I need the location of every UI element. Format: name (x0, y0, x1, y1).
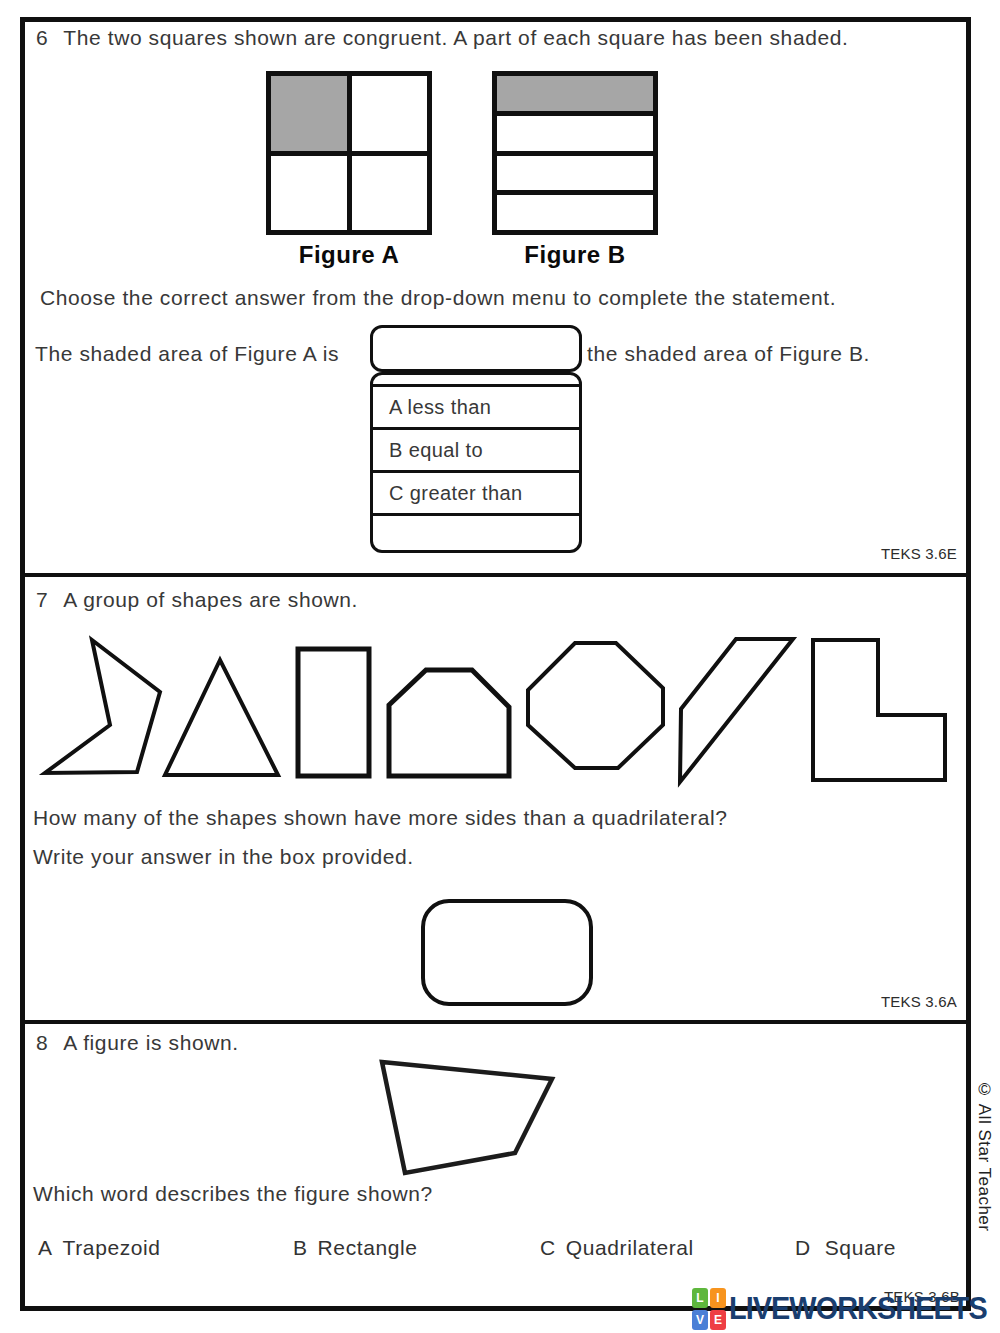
figure-comparison-dropdown[interactable] (370, 325, 582, 372)
shape-quadrilateral (382, 1062, 552, 1173)
liveworksheets-logo-blocks-icon: L I V E (692, 1288, 726, 1330)
choice-letter: D (795, 1236, 811, 1260)
figure-b-row (497, 116, 653, 151)
q6-prompt-text: The two squares shown are congruent. A p… (63, 26, 848, 50)
choice-letter: C (540, 1236, 556, 1260)
worksheet-page: 6 The two squares shown are congruent. A… (0, 0, 1000, 1333)
q7-prompt-text: A group of shapes are shown. (63, 588, 358, 612)
figure-a-shaded-cell (271, 76, 347, 151)
dropdown-menu-spacer (373, 375, 579, 387)
q7-number: 7 (36, 588, 48, 612)
choice-label: Trapezoid (63, 1236, 161, 1260)
choice-a-trapezoid[interactable]: A Trapezoid (38, 1236, 161, 1260)
section-divider (25, 573, 966, 577)
q6-teks-label: TEKS 3.6E (881, 545, 957, 562)
choice-d-square[interactable]: D Square (795, 1236, 896, 1260)
shape-concave-pentagon (45, 640, 160, 773)
shape-triangle (165, 660, 278, 775)
shape-parallelogram (680, 639, 793, 782)
section-divider (25, 1020, 966, 1024)
figure-b-row (497, 156, 653, 191)
logo-block-l: L (692, 1288, 708, 1308)
figure-b-graphic (492, 71, 658, 235)
figure-b-row (497, 195, 653, 230)
choice-letter: B (293, 1236, 308, 1260)
liveworksheets-logo[interactable]: L I V E LIVEWORKSHEETS (692, 1288, 1000, 1330)
figure-a-cell (352, 156, 428, 231)
choice-label: Rectangle (318, 1236, 418, 1260)
choice-label: Square (825, 1236, 896, 1260)
shape-octagon (528, 643, 663, 768)
dropdown-menu: A less than B equal to C greater than (370, 372, 582, 553)
choice-label: Quadrilateral (566, 1236, 694, 1260)
q7-question: How many of the shapes shown have more s… (33, 806, 727, 830)
q8-prompt-text: A figure is shown. (63, 1031, 238, 1055)
figure-b-label: Figure B (492, 241, 658, 269)
q7-teks-label: TEKS 3.6A (881, 993, 957, 1010)
q6-statement-after: the shaded area of Figure B. (587, 342, 870, 366)
figure-a-cell (352, 76, 428, 151)
shape-l-shape (813, 640, 945, 780)
figure-a-cell (271, 156, 347, 231)
q8-number: 8 (36, 1031, 48, 1055)
q6-statement-before: The shaded area of Figure A is (35, 342, 339, 366)
dropdown-option-greater-than[interactable]: C greater than (373, 473, 579, 516)
shape-hexagon (389, 670, 509, 776)
q8-figure-graphic (365, 1048, 565, 1183)
choice-b-rectangle[interactable]: B Rectangle (293, 1236, 418, 1260)
q8-prompt: 8 A figure is shown. (36, 1031, 239, 1055)
q6-prompt: 6 The two squares shown are congruent. A… (36, 26, 848, 50)
answer-input-box[interactable] (421, 899, 593, 1006)
logo-block-e: E (710, 1310, 726, 1330)
shape-group-graphic (30, 628, 960, 796)
shape-rectangle (298, 649, 369, 776)
dropdown-option-equal-to[interactable]: B equal to (373, 430, 579, 473)
logo-text: LIVEWORKSHEETS (729, 1288, 987, 1330)
q8-question: Which word describes the figure shown? (33, 1182, 433, 1206)
q6-instruction: Choose the correct answer from the drop-… (40, 286, 836, 310)
logo-block-v: V (692, 1310, 708, 1330)
q7-instruction: Write your answer in the box provided. (33, 845, 414, 869)
figure-b-shaded-row (497, 76, 653, 111)
logo-block-i: I (710, 1288, 726, 1308)
choice-c-quadrilateral[interactable]: C Quadrilateral (540, 1236, 694, 1260)
figure-a-label: Figure A (266, 241, 432, 269)
q7-prompt: 7 A group of shapes are shown. (36, 588, 358, 612)
figure-a-graphic (266, 71, 432, 235)
dropdown-option-less-than[interactable]: A less than (373, 387, 579, 430)
choice-letter: A (38, 1236, 53, 1260)
q6-number: 6 (36, 26, 48, 50)
